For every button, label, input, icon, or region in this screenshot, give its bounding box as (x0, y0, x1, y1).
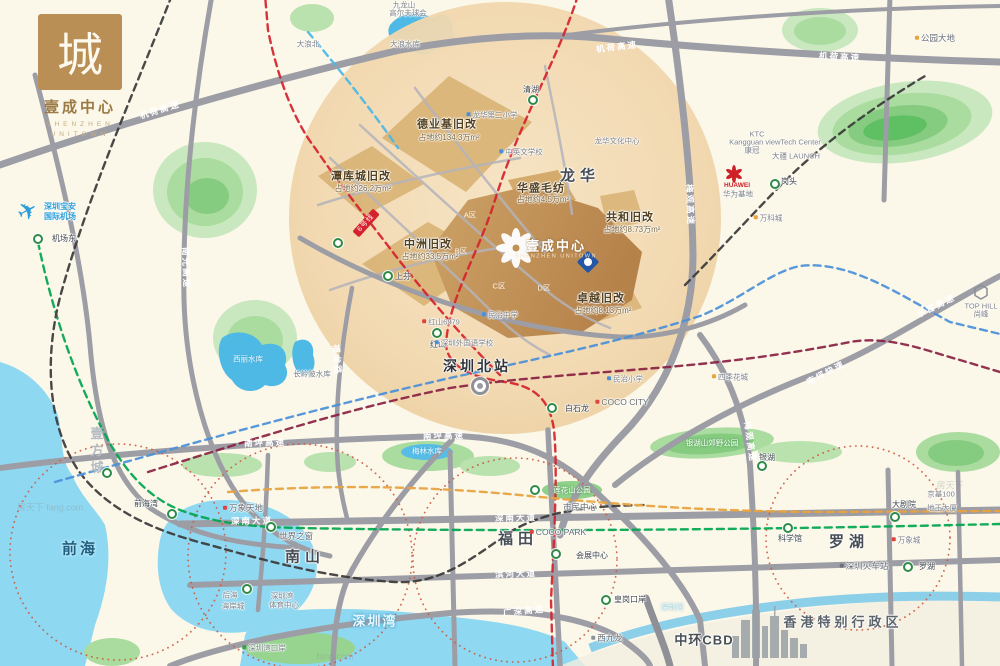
project-name: 壹成中心 (526, 240, 586, 253)
metro-station-marker (266, 522, 276, 532)
map-label-52: 大剧院 (892, 501, 916, 509)
poi-dot-icon (422, 319, 426, 323)
map-label-98: 国际机场 (44, 213, 76, 221)
road-nanguang-expwy: 南光高速 (181, 247, 191, 289)
poi-dot-icon (840, 564, 844, 568)
map-label-90: 公园大地 (915, 34, 955, 43)
map-label-23: 西九龙 (591, 634, 623, 643)
poi-dot-icon (607, 376, 611, 380)
zone-gonghe: 共和旧改 (606, 213, 654, 224)
map-label-67: 地王大厦 (927, 504, 957, 512)
poi-dot-icon (242, 645, 246, 649)
brand-logo: 城 (38, 14, 122, 90)
zone-huasheng: 华盛毛纺 (517, 184, 565, 195)
metro-station-marker (432, 328, 442, 338)
metro-station-marker (33, 234, 43, 244)
map-label-80: 龙华第二小学 (467, 111, 518, 119)
map-label-29: 占地约26.2万m² (335, 185, 392, 193)
metro-station-marker (770, 179, 780, 189)
metro-station-marker (383, 271, 393, 281)
map-label-82: 龙华文化中心 (595, 137, 640, 145)
map-label-49: 前海湾 (134, 500, 158, 508)
metro-station-marker (167, 509, 177, 519)
map-label-48: 机场东 (52, 235, 76, 243)
zone-deyeji: 德业基旧改 (417, 120, 477, 131)
map-label-11: 深南大道 (495, 513, 537, 522)
shenzhen-north-station-label: 深圳北站 (443, 359, 511, 373)
map-label-44: 清湖 (523, 86, 539, 94)
poi-dot-icon (591, 636, 595, 640)
map-label-5: 梅观高速 (743, 421, 757, 464)
district-qianhai: 前海 (62, 542, 98, 557)
district-luohu: 罗湖 (829, 535, 869, 550)
metro-station-marker (547, 403, 557, 413)
map-label-41: D区 (538, 284, 551, 292)
map-label-35: 占地约8.73万m² (604, 226, 661, 234)
road-meiguan-expwy: 梅观高速 (685, 184, 695, 226)
poi-dot-icon (892, 537, 896, 541)
map-label-70: 银湖山郊野公园 (686, 439, 739, 447)
map-label-66: 京基100 (927, 490, 955, 498)
shenzhen-bay-label: 深圳湾 (352, 615, 397, 628)
map-label-74: COCO CITY (595, 398, 648, 407)
hongkong-sar-label: 香港特别行政区 (783, 616, 902, 629)
map-label-72: 西丽水库 (233, 355, 263, 363)
metro-station-marker (757, 461, 767, 471)
map-label-87: 大疆 LAUNCH (772, 152, 820, 160)
metro-station-marker (242, 584, 252, 594)
map-label-9: 南坪快速 (805, 359, 846, 386)
metro-line6-badge: 6号线 (352, 209, 379, 238)
map-label-89: 华为基地 (723, 190, 753, 198)
map-label-layer: 机荷高速机荷高速机荷高速南光高速梅观高速梅观高速南坪高速南坪高速水官高速南坪快速… (0, 0, 1000, 666)
map-label-33: 占地约4.5万m² (517, 196, 569, 204)
poi-dot-icon (499, 149, 503, 153)
poi-dot-icon (223, 506, 227, 510)
brand-subtitle: SHENZHEN UNITOWN (20, 120, 140, 140)
map-label-7: 南坪高速 (423, 431, 465, 440)
map-label-57: 世界之窗 (279, 532, 313, 541)
metro-station-marker (890, 512, 900, 522)
central-cbd-label: 中环CBD (674, 634, 733, 647)
road-jihe-expwy: 机荷高速 (139, 100, 182, 120)
zone-zhongzhou: 中洲旧改 (404, 240, 452, 251)
watermark: 房天下 fang.com (17, 504, 84, 513)
metro-station-marker (551, 549, 561, 559)
map-label-81: 中英文学校 (499, 148, 543, 156)
map-label-61: 深圳湾 (271, 592, 294, 600)
map-label-93: 高尔夫球会 (389, 9, 427, 17)
map-label-91: 大浪北 (297, 40, 320, 48)
map-label-96: 尚峰 (974, 310, 989, 318)
poi-dot-icon (712, 374, 716, 378)
map-label-83: 万科城 (754, 214, 783, 222)
map-label-50: 会展中心 (576, 552, 608, 560)
map-label-79: 深圳外国语学校 (435, 339, 494, 347)
metro-station-marker (333, 238, 343, 248)
map-label-51: 科学馆 (778, 535, 802, 543)
airport-label: 深圳宝安 (44, 203, 76, 211)
poi-dot-icon (482, 312, 486, 316)
metro-station-marker (903, 562, 913, 572)
map-label-47: 白石龙 (565, 405, 589, 413)
project-name-en: SHENZHEN UNITOWN (515, 254, 597, 260)
metro-station-marker (530, 485, 540, 495)
map-label-64: COCO PARK (530, 528, 586, 537)
hsr-station-marker (471, 377, 489, 395)
map-label-38: A区 (464, 211, 477, 219)
airport-plane-icon: ✈ (13, 197, 42, 228)
poi-dot-icon (915, 36, 919, 40)
map-label-99: 深圳湾口岸 (242, 644, 286, 652)
brand-block: 城 壹成中心 SHENZHEN UNITOWN (20, 14, 140, 140)
map-label-78: 红山6979 (422, 318, 460, 326)
map-label-24: 深圳河 (661, 603, 684, 611)
map-label-1: 机荷高速 (596, 40, 639, 54)
map-label-58: 万象天地 (223, 504, 263, 513)
brand-logo-char: 城 (57, 19, 103, 85)
watermark: 房天下 (936, 482, 963, 491)
road-binhe-avenue: 滨河大道 (495, 569, 537, 579)
road-guangshen-expwy: 广深高速 (503, 605, 546, 617)
poi-dot-icon (467, 112, 471, 116)
district-nanshan: 南山 (285, 550, 325, 565)
map-label-76: 四季花城 (712, 373, 748, 381)
map-label-65: 莲花山公园 (553, 486, 591, 494)
map-label-40: C区 (493, 282, 506, 290)
map-label-31: 占地约33.5万m² (402, 253, 459, 261)
map-label-85: Kangguan viewTech Center (729, 138, 821, 146)
metro-station-marker (528, 95, 538, 105)
uniworld-brand-label: 壹方城 (90, 427, 103, 478)
map-label-45: 上芬 (395, 273, 411, 281)
map-label-55: 皇岗口岸 (614, 596, 646, 604)
map-label-59: 后海 (223, 591, 238, 599)
map-label-68: 万象城 (892, 536, 921, 544)
map-label-86: 康冠 (745, 146, 760, 154)
map-label-63: 市民中心 (563, 503, 597, 512)
map-label-53: 罗湖 (919, 563, 935, 571)
map-label-60: 海岸城 (222, 602, 245, 610)
poi-dot-icon (754, 215, 758, 219)
map-label-69: 深圳火车站 (840, 562, 889, 571)
map-label-77: 民治中学 (482, 311, 518, 319)
map-label-75: 民治小学 (607, 375, 643, 383)
map-label-73: 长岭陂水库 (293, 370, 331, 378)
district-longhua: 龙华 (560, 169, 600, 184)
road-nanping-expwy: 南坪高速 (244, 438, 286, 448)
map-label-2: 机荷高速 (819, 52, 861, 63)
map-label-37: 占地约8.13万m² (575, 307, 632, 315)
watermark: fang.com (316, 653, 353, 662)
map-canvas: 机荷高速机荷高速机荷高速南光高速梅观高速梅观高速南坪高速南坪高速水官高速南坪快速… (0, 0, 1000, 666)
zone-tankucheng: 潭库城旧改 (331, 172, 391, 183)
poi-dot-icon (595, 400, 599, 404)
map-label-27: 占地约134.3万m² (418, 134, 479, 142)
map-label-39: B区 (455, 247, 468, 255)
map-label-62: 体育中心 (269, 601, 299, 609)
brand-title: 壹成中心 (20, 96, 140, 117)
map-label-94: 大浪水库 (390, 40, 420, 48)
road-shuiguan-expwy: 水官高速 (915, 293, 956, 319)
zone-zhuoyue: 卓越旧改 (577, 294, 625, 305)
poi-dot-icon (530, 530, 534, 534)
metro-station-marker (783, 523, 793, 533)
map-label-56: 岗头 (781, 178, 797, 186)
metro-station-marker (102, 468, 112, 478)
map-label-71: 梅林水库 (412, 447, 442, 455)
metro-station-marker (601, 595, 611, 605)
road-fulong-road: 福龙路 (332, 344, 343, 376)
poi-dot-icon (435, 340, 439, 344)
